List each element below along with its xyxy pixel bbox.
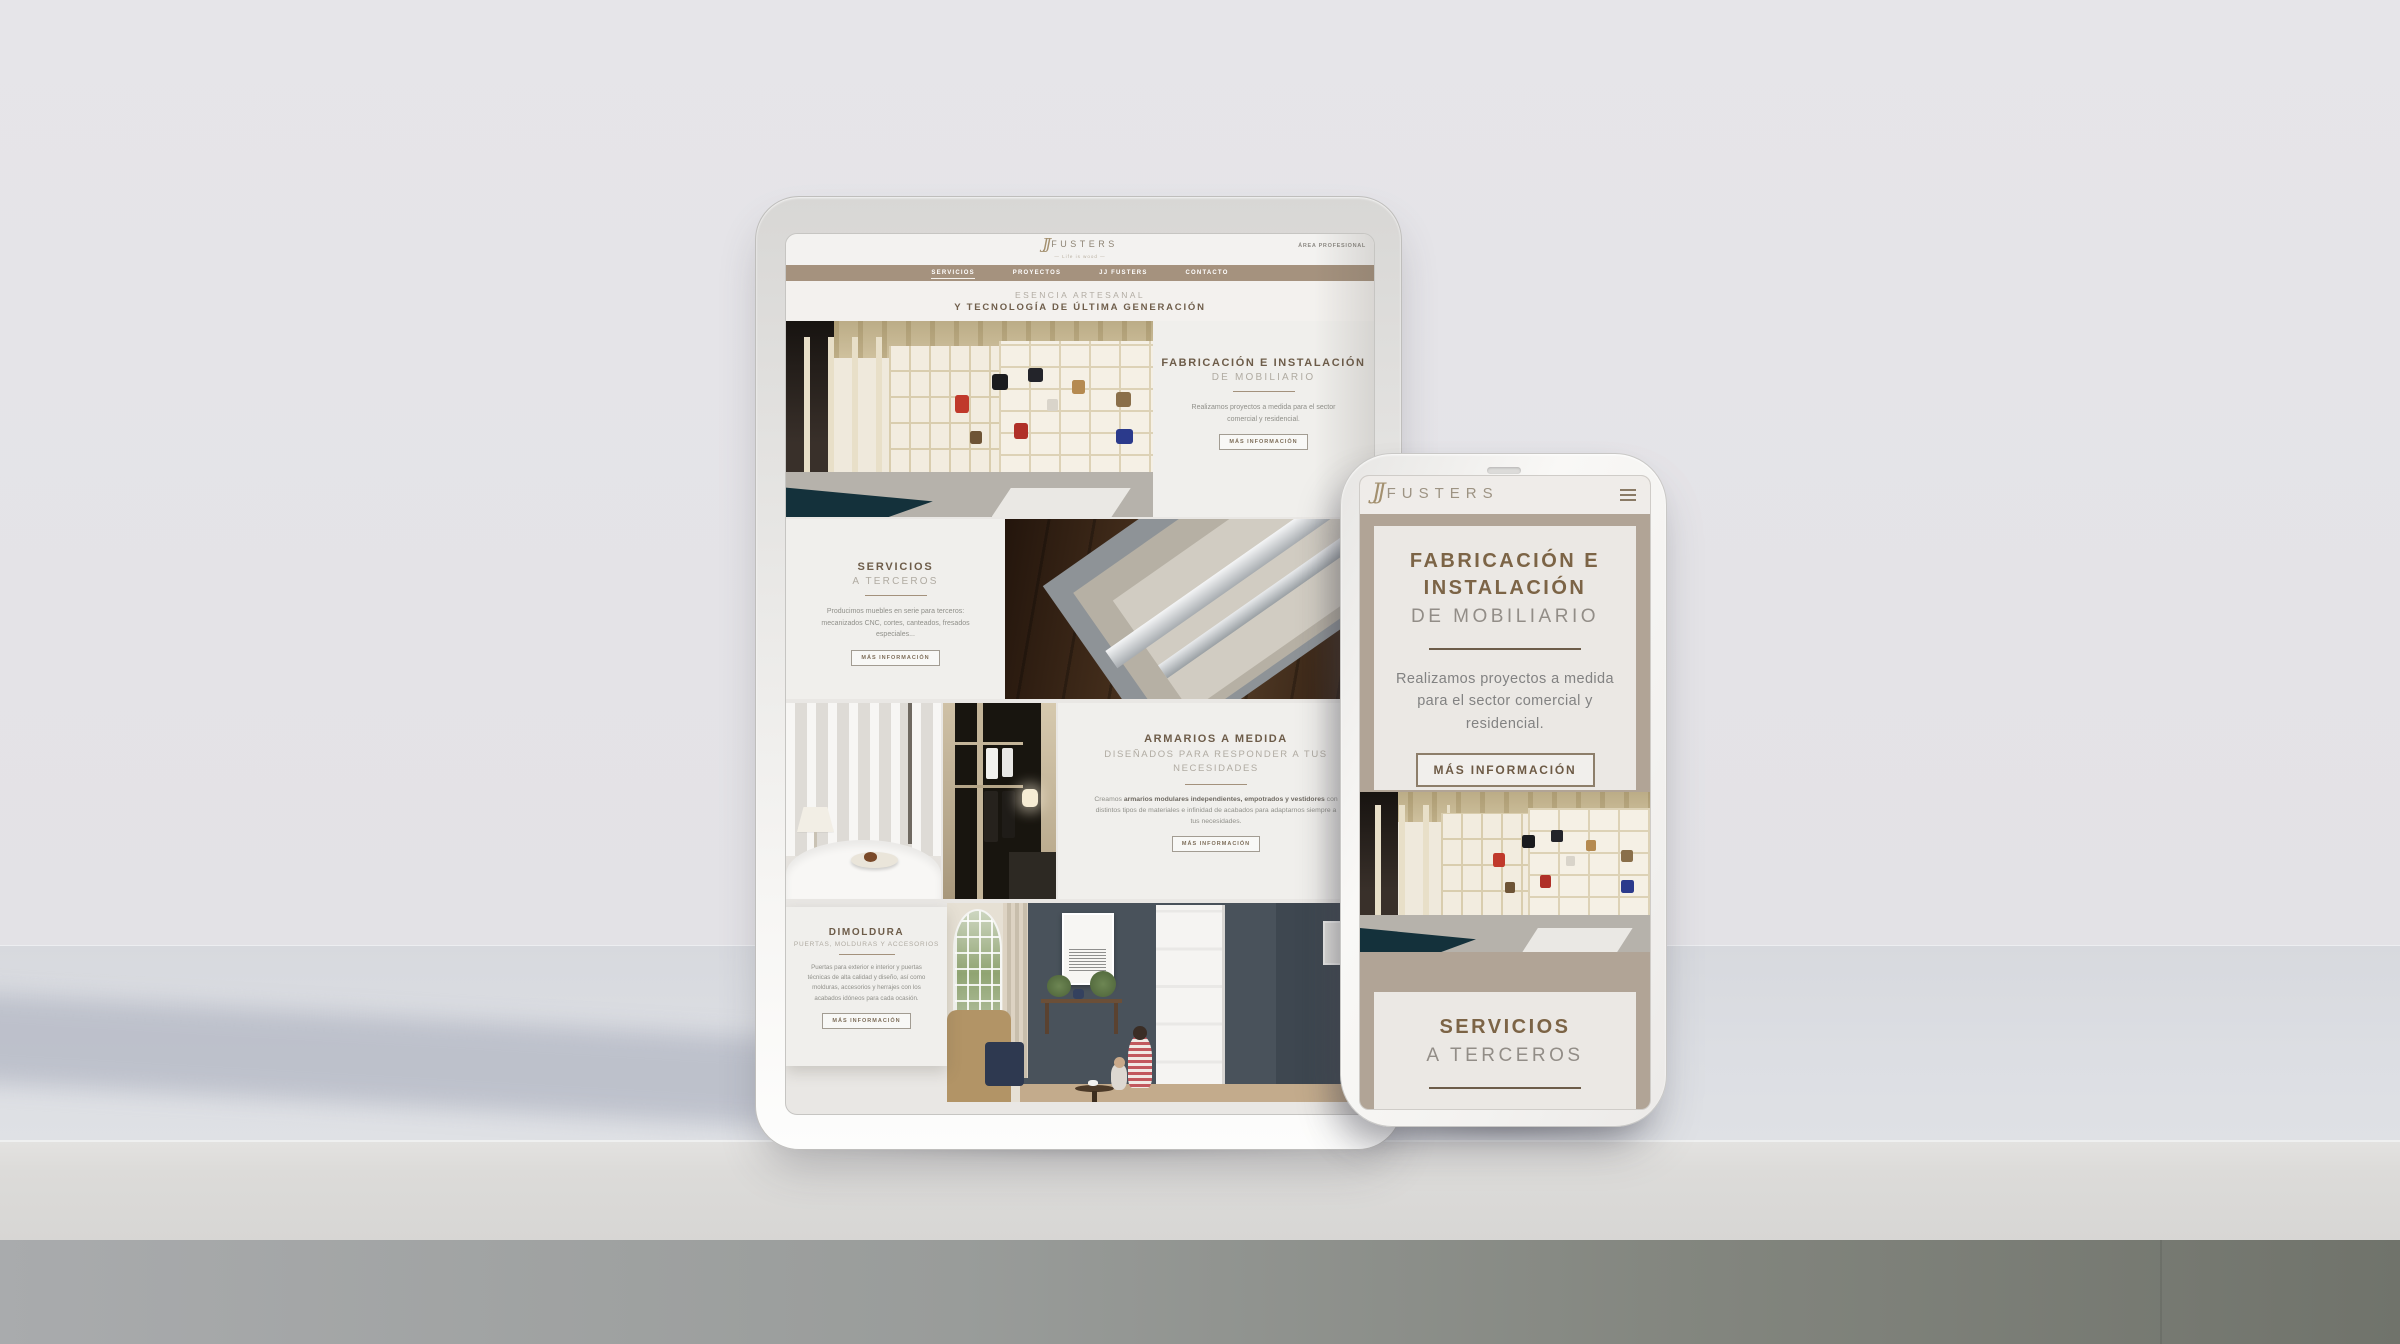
section-title: FABRICACIÓN E INSTALACIÓN — [1388, 548, 1622, 602]
divider — [839, 954, 895, 955]
mas-informacion-button[interactable]: MÁS INFORMACIÓN — [822, 1013, 910, 1029]
card-armarios: ARMARIOS A MEDIDA DISEÑADOS PARA RESPOND… — [1058, 703, 1374, 899]
site-logo[interactable]: JJFUSTERS — [1372, 482, 1499, 504]
hanging-shirt — [986, 748, 998, 779]
desk-seam — [2160, 1240, 2162, 1344]
closet-shelf — [955, 742, 1023, 745]
hamburger-menu-icon[interactable] — [1620, 489, 1636, 501]
card-dimoldura: DIMOLDURA PUERTAS, MOLDURAS Y ACCESORIOS… — [786, 907, 947, 1066]
closet-shelf — [955, 785, 1023, 788]
section-body: Realizamos proyectos a medida para el se… — [1177, 402, 1350, 425]
photo-closet — [943, 703, 1056, 899]
handbag — [1028, 368, 1043, 382]
logo-name: FUSTERS — [1387, 485, 1499, 502]
section-title: FABRICACIÓN E INSTALACIÓN — [1153, 357, 1374, 369]
child-figure — [1111, 1064, 1126, 1090]
handbag — [1586, 840, 1596, 851]
section-body: Puertas para exterior e interior y puert… — [802, 963, 931, 1004]
section-title: DIMOLDURA — [786, 927, 947, 938]
table-leg — [1045, 1003, 1049, 1035]
curtain-pole — [908, 703, 911, 844]
plant — [1047, 975, 1070, 997]
table-leg — [1114, 1003, 1118, 1035]
photo-showroom — [786, 321, 1153, 517]
phone-screen: JJFUSTERS FABRICACIÓN E INSTALACIÓN DE M… — [1359, 475, 1651, 1110]
mas-informacion-button[interactable]: MÁS INFORMACIÓN — [1219, 434, 1307, 450]
handbag — [1116, 392, 1131, 408]
phone-card-fabricacion: FABRICACIÓN E INSTALACIÓN DE MOBILIARIO … — [1374, 526, 1636, 790]
site-logo[interactable]: JJFUSTERS — Life is wood — — [1042, 237, 1118, 260]
phone-card-servicios: SERVICIOS A TERCEROS Producimos muebles … — [1374, 992, 1636, 1110]
handbag — [1116, 429, 1133, 445]
closet-column — [977, 703, 983, 899]
handbag — [955, 395, 970, 413]
handbag — [1493, 853, 1505, 867]
phone-speaker — [1487, 467, 1521, 474]
tablet-site-header: JJFUSTERS — Life is wood — ÁREA PROFESIO… — [786, 234, 1374, 265]
woman-figure — [1128, 1036, 1151, 1088]
section-subtitle: A TERCEROS — [786, 576, 1005, 587]
divider — [865, 595, 927, 596]
coffee-cup — [1088, 1080, 1098, 1086]
showroom-platform — [992, 488, 1131, 517]
white-door — [1156, 905, 1224, 1098]
photo-living-room — [947, 903, 1374, 1102]
logo-monogram-icon: JJ — [1042, 237, 1048, 252]
handbag — [1505, 882, 1515, 893]
handbag — [1072, 380, 1085, 394]
section-subtitle: A TERCEROS — [1374, 1045, 1636, 1067]
section-body: Producimos muebles en serie para tercero… — [808, 606, 983, 641]
showroom-pillars — [1375, 805, 1450, 917]
section-subtitle: DE MOBILIARIO — [1374, 606, 1636, 628]
handbag — [1047, 399, 1058, 411]
mas-informacion-button[interactable]: MÁS INFORMACIÓN — [851, 650, 939, 666]
card-servicios: SERVICIOS A TERCEROS Producimos muebles … — [786, 519, 1005, 699]
tablet-screen: JJFUSTERS — Life is wood — ÁREA PROFESIO… — [785, 233, 1375, 1115]
nav-item-jjfusters[interactable]: JJ FUSTERS — [1099, 268, 1147, 278]
logo-name: FUSTERS — [1051, 239, 1118, 249]
console-table — [1041, 999, 1122, 1004]
hero-heading: ESENCIA ARTESANAL Y TECNOLOGÍA DE ÚLTIMA… — [786, 281, 1374, 321]
divider — [1429, 1087, 1581, 1089]
hero-line1: ESENCIA ARTESANAL — [786, 290, 1374, 300]
handbag — [1621, 850, 1633, 863]
handbag — [1566, 856, 1575, 866]
hanging-shirt — [1002, 748, 1013, 777]
round-table-leg — [1092, 1091, 1097, 1102]
section-servicios: SERVICIOS A TERCEROS Producimos muebles … — [786, 519, 1374, 699]
showroom-platform — [1522, 928, 1632, 952]
section-subtitle: PUERTAS, MOLDURAS Y ACCESORIOS — [786, 941, 947, 948]
tablet-device: JJFUSTERS — Life is wood — ÁREA PROFESIO… — [755, 196, 1402, 1150]
bed-corner — [1009, 852, 1056, 899]
logo-monogram-icon: JJ — [1372, 480, 1382, 505]
photo-drawer — [1005, 519, 1374, 699]
showroom-pillars — [804, 337, 899, 474]
handbag — [1540, 875, 1552, 888]
nav-item-contacto[interactable]: CONTACTO — [1186, 268, 1229, 278]
card-fabricacion: FABRICACIÓN E INSTALACIÓN DE MOBILIARIO … — [1153, 321, 1374, 517]
food — [864, 852, 878, 862]
vase — [1073, 989, 1084, 999]
showroom-shelving-left — [889, 346, 999, 475]
wood-floor — [1020, 1084, 1374, 1102]
photo-showroom — [1360, 792, 1650, 952]
phone-site-header: JJFUSTERS — [1360, 476, 1650, 514]
handbag — [1551, 830, 1563, 841]
handbag — [1522, 835, 1535, 848]
section-title: ARMARIOS A MEDIDA — [1058, 733, 1374, 745]
handbag — [992, 374, 1009, 390]
divider — [1429, 648, 1581, 650]
desk-front-edge — [0, 1240, 2400, 1344]
section-subtitle: DE MOBILIARIO — [1153, 372, 1374, 383]
hero-line2: Y TECNOLOGÍA DE ÚLTIMA GENERACIÓN — [786, 302, 1374, 313]
handbag — [970, 431, 983, 445]
section-title: SERVICIOS — [1388, 1014, 1622, 1041]
photo-bedroom — [786, 703, 941, 899]
hanging-suit — [984, 791, 999, 842]
mas-informacion-button[interactable]: MÁS INFORMACIÓN — [1416, 753, 1595, 787]
section-dimoldura: DIMOLDURA PUERTAS, MOLDURAS Y ACCESORIOS… — [786, 903, 1374, 1102]
hanging-suit — [1002, 791, 1016, 838]
divider — [1185, 784, 1247, 785]
section-body: Creamos armarios modulares independiente… — [1092, 794, 1340, 828]
lamp-stem — [814, 832, 817, 848]
device-mockup-scene: JJFUSTERS — Life is wood — ÁREA PROFESIO… — [0, 0, 2400, 1344]
plant — [1090, 971, 1116, 997]
tablet-cast-shadow — [0, 992, 822, 1129]
showroom-shelving-back — [999, 341, 1153, 478]
main-nav: SERVICIOS PROYECTOS JJ FUSTERS CONTACTO — [786, 265, 1374, 281]
section-armarios: ARMARIOS A MEDIDA DISEÑADOS PARA RESPOND… — [786, 703, 1374, 899]
divider — [1233, 391, 1295, 392]
showroom-shelving-left — [1441, 813, 1528, 919]
area-profesional-link[interactable]: ÁREA PROFESIONAL — [1298, 243, 1366, 249]
section-title: SERVICIOS — [786, 561, 1005, 573]
bed — [786, 840, 941, 899]
handbag — [1621, 880, 1634, 893]
phone-device: JJFUSTERS FABRICACIÓN E INSTALACIÓN DE M… — [1340, 453, 1667, 1127]
nav-item-proyectos[interactable]: PROYECTOS — [1013, 268, 1061, 278]
section-body: Producimos muebles en serie — [1392, 1107, 1618, 1110]
nav-item-servicios[interactable]: SERVICIOS — [931, 268, 974, 279]
showroom-shelving-back — [1528, 808, 1650, 920]
desk-surface — [0, 1140, 2400, 1242]
closet-column — [943, 703, 955, 899]
section-fabricacion: FABRICACIÓN E INSTALACIÓN DE MOBILIARIO … — [786, 321, 1374, 517]
cushion — [985, 1042, 1023, 1086]
curtains — [786, 703, 941, 856]
section-subtitle: DISEÑADOS PARA RESPONDER A TUS NECESIDAD… — [1058, 748, 1374, 776]
mas-informacion-button[interactable]: MÁS INFORMACIÓN — [1172, 836, 1260, 852]
section-body: Realizamos proyectos a medida para el se… — [1392, 668, 1618, 735]
logo-tagline: — Life is wood — — [1042, 255, 1118, 260]
child-head — [1114, 1057, 1125, 1068]
handbag — [1014, 423, 1029, 439]
bedside-lamp — [1022, 789, 1038, 807]
